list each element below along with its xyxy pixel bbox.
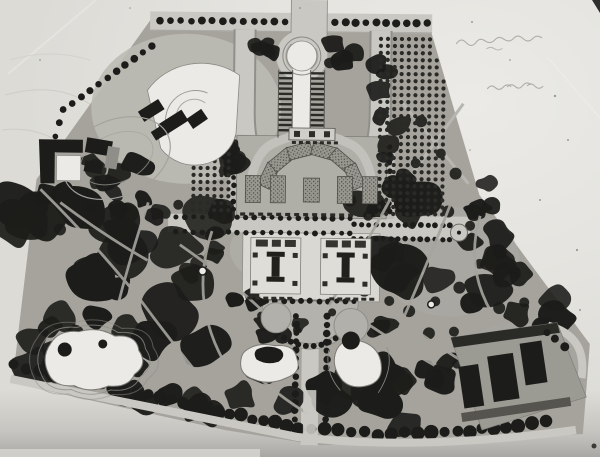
colonnade-rung bbox=[279, 98, 292, 101]
balustrade-dash bbox=[287, 297, 292, 300]
speck bbox=[419, 49, 421, 51]
balustrade-dash bbox=[330, 213, 335, 216]
colonnade-rung bbox=[311, 109, 324, 112]
courtyard bbox=[57, 155, 81, 180]
corner-pier bbox=[293, 253, 298, 258]
colonnade-rung bbox=[279, 72, 292, 75]
balustrade-dash bbox=[327, 141, 331, 144]
lake-water bbox=[45, 329, 143, 390]
balustrade-dash bbox=[337, 297, 342, 300]
balustrade-dash bbox=[279, 297, 284, 300]
speck bbox=[567, 139, 569, 141]
fountain-basin bbox=[342, 257, 350, 277]
speck bbox=[471, 21, 473, 23]
colonnade-rung bbox=[279, 93, 292, 96]
pavilion-wing bbox=[285, 240, 296, 247]
balustrade-dash bbox=[329, 297, 334, 300]
pavilion-west bbox=[250, 237, 301, 294]
pavilion-bay bbox=[294, 131, 300, 137]
corner-pier bbox=[292, 281, 297, 286]
balustrade-dash bbox=[345, 297, 350, 300]
pavilion-wing bbox=[342, 240, 351, 247]
balustrade-dash bbox=[361, 298, 366, 301]
colonnade-rung bbox=[311, 119, 324, 122]
balustrade-dash bbox=[306, 141, 310, 144]
photograph: (illegible handwritten pencil note) (ill… bbox=[0, 0, 600, 457]
paper-edge-sliver bbox=[0, 449, 260, 457]
colonnade-rung bbox=[311, 88, 324, 91]
corner-artifact bbox=[592, 444, 597, 449]
colonnade-rung bbox=[311, 93, 324, 96]
speck bbox=[509, 59, 511, 61]
balustrade-dash bbox=[271, 297, 276, 300]
colonnade-rung bbox=[311, 98, 324, 101]
balustrade-dash bbox=[339, 213, 344, 216]
colonnade-rung bbox=[311, 77, 324, 80]
balustrade-dash bbox=[294, 213, 299, 216]
fountain-basin bbox=[266, 277, 284, 282]
colonnade-rail bbox=[278, 70, 279, 138]
parterre-bed bbox=[303, 178, 319, 202]
colonnade-rung bbox=[311, 72, 324, 75]
balustrade-dash bbox=[292, 141, 296, 144]
balustrade-dash bbox=[353, 298, 358, 301]
parterre-bed bbox=[362, 177, 377, 204]
colonnade-rung bbox=[311, 124, 324, 127]
speck bbox=[39, 59, 41, 61]
balustrade-dash bbox=[348, 214, 353, 217]
colonnade-rung bbox=[279, 82, 292, 85]
colonnade-rung bbox=[311, 83, 324, 86]
colonnade-rung bbox=[311, 103, 324, 106]
fountain-basin bbox=[272, 257, 280, 277]
balustrade-dash bbox=[285, 213, 290, 216]
colonnade-rung bbox=[279, 119, 292, 122]
balustrade-dash bbox=[303, 213, 308, 216]
colonnade-rung bbox=[279, 108, 292, 111]
balustrade-dash bbox=[249, 212, 254, 215]
pavilion-east bbox=[320, 238, 371, 295]
balustrade-dash bbox=[267, 213, 272, 216]
colonnade-rung bbox=[279, 77, 292, 80]
south-avenue bbox=[303, 390, 317, 442]
pavilion-wing bbox=[272, 240, 281, 247]
parterre-bed bbox=[245, 175, 260, 202]
site-plan-drawing: (illegible handwritten pencil note) (ill… bbox=[0, 0, 600, 457]
speck bbox=[299, 7, 301, 9]
pavilion-wing bbox=[326, 240, 338, 247]
balustrade-dash bbox=[321, 213, 326, 216]
corner-pier bbox=[252, 281, 257, 286]
balustrade-dash bbox=[276, 213, 281, 216]
speck bbox=[129, 7, 131, 9]
fountain-basin bbox=[337, 252, 355, 257]
speck bbox=[469, 149, 471, 151]
parterre-bed bbox=[337, 176, 352, 203]
balustrade-dash bbox=[263, 297, 268, 300]
pavilion-wing bbox=[256, 240, 268, 247]
circular-lawn bbox=[261, 303, 291, 333]
corner-pier bbox=[362, 282, 367, 287]
corner-pier bbox=[322, 281, 327, 286]
balustrade-dash bbox=[312, 213, 317, 216]
parterre-bed bbox=[270, 176, 285, 203]
monument bbox=[199, 267, 207, 275]
corner-pier bbox=[363, 254, 368, 259]
speck bbox=[539, 199, 541, 201]
balustrade-dash bbox=[258, 213, 263, 216]
fountain-basin bbox=[336, 277, 354, 282]
pavilion-bay bbox=[324, 131, 330, 137]
colonnade-rung bbox=[279, 124, 292, 127]
balustrade-dash bbox=[247, 296, 252, 299]
balustrade-dash bbox=[320, 141, 324, 144]
speck bbox=[576, 249, 578, 251]
balustrade-dash bbox=[240, 212, 245, 215]
balustrade-dash bbox=[357, 214, 362, 217]
corner-pier bbox=[323, 253, 328, 258]
speck bbox=[579, 309, 581, 311]
corner-pier bbox=[253, 253, 258, 258]
colonnade-rung bbox=[311, 114, 324, 117]
pavilion-bay bbox=[309, 131, 315, 137]
balustrade-dash bbox=[299, 141, 303, 144]
monument bbox=[428, 301, 435, 308]
balustrade-dash bbox=[366, 214, 371, 217]
colonnade-rung bbox=[279, 87, 292, 90]
balustrade-dash bbox=[369, 298, 374, 301]
pavilion-wing bbox=[355, 241, 366, 248]
balustrade-dash bbox=[375, 214, 380, 217]
balustrade-dash bbox=[313, 141, 317, 144]
balustrade-dash bbox=[334, 141, 338, 144]
colonnade-rung bbox=[279, 113, 292, 116]
colonnade-rung bbox=[279, 103, 292, 106]
head-pool bbox=[287, 41, 317, 71]
balustrade-dash bbox=[255, 297, 260, 300]
speck bbox=[554, 95, 556, 97]
fountain-basin bbox=[267, 252, 285, 257]
